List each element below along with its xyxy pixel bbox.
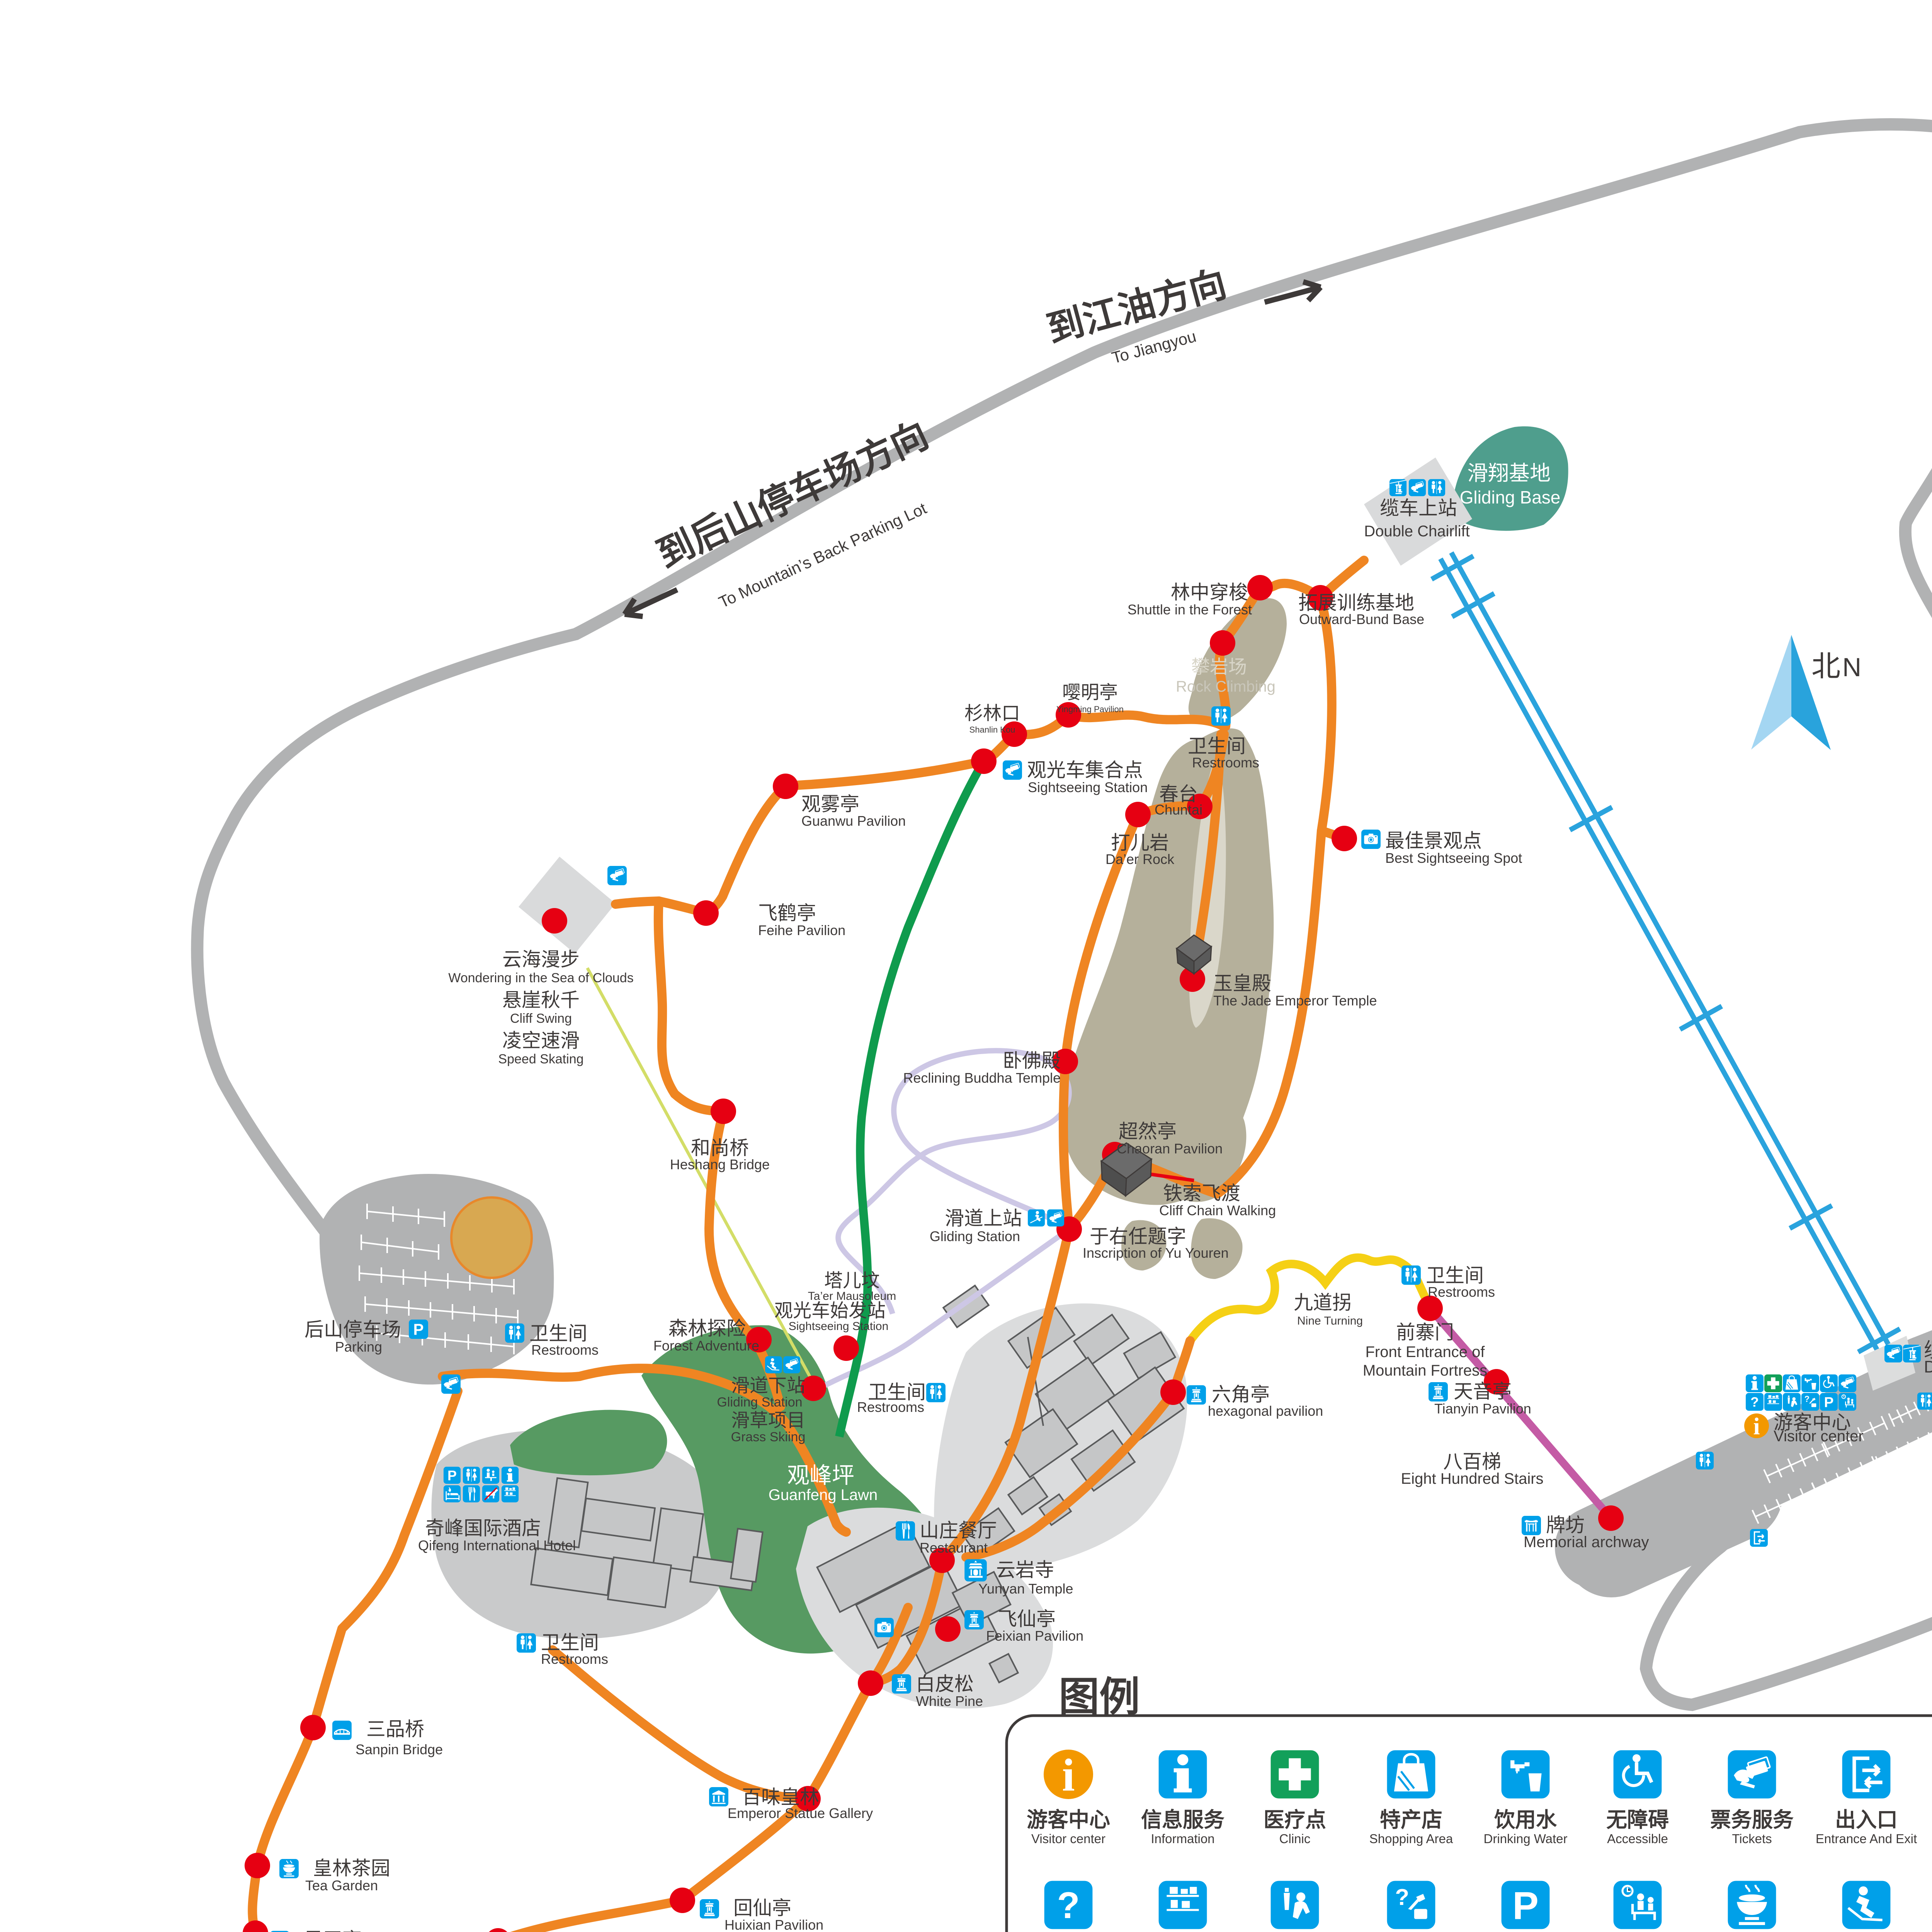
svg-text:卫生间: 卫生间 [541, 1632, 599, 1653]
svg-text:云岩寺: 云岩寺 [996, 1559, 1054, 1581]
svg-text:观雾亭: 观雾亭 [801, 793, 859, 815]
svg-text:Grass Skiing: Grass Skiing [731, 1430, 806, 1444]
svg-text:Gliding Station: Gliding Station [930, 1228, 1020, 1244]
svg-text:Guanwu Pavilion: Guanwu Pavilion [801, 813, 906, 829]
svg-text:Cliff Chain Walking: Cliff Chain Walking [1159, 1202, 1276, 1218]
svg-text:医疗点: 医疗点 [1264, 1808, 1326, 1832]
svg-text:Cliff Swing: Cliff Swing [510, 1011, 572, 1026]
svg-text:Double Chairlift: Double Chairlift [1924, 1357, 1932, 1376]
svg-text:Double Chairlift: Double Chairlift [1364, 523, 1469, 540]
svg-text:君王亭: 君王亭 [304, 1929, 362, 1932]
svg-text:滑翔基地: 滑翔基地 [1467, 462, 1551, 485]
svg-text:Yingming Pavilion: Yingming Pavilion [1056, 704, 1124, 714]
svg-text:前寨门: 前寨门 [1396, 1321, 1454, 1343]
svg-text:Forest Adventure: Forest Adventure [653, 1338, 759, 1354]
svg-text:Eight Hundred Stairs: Eight Hundred Stairs [1401, 1470, 1543, 1487]
svg-text:Restrooms: Restrooms [857, 1399, 924, 1415]
svg-text:Huixian Pavilion: Huixian Pavilion [724, 1917, 823, 1932]
svg-text:天音亭: 天音亭 [1454, 1381, 1512, 1402]
svg-text:Clinic: Clinic [1279, 1832, 1311, 1846]
svg-text:拓展训练基地: 拓展训练基地 [1298, 592, 1414, 614]
svg-text:Rock Climbing: Rock Climbing [1176, 678, 1276, 695]
svg-text:Wondering in the Sea of Clouds: Wondering in the Sea of Clouds [448, 971, 633, 985]
svg-text:观光车集合点: 观光车集合点 [1027, 759, 1143, 781]
svg-text:出入口: 出入口 [1835, 1808, 1898, 1832]
svg-text:飞鹤亭: 飞鹤亭 [758, 902, 816, 924]
svg-text:Gliding Base: Gliding Base [1460, 487, 1561, 507]
svg-text:Reclining Buddha Temple: Reclining Buddha Temple [903, 1070, 1061, 1086]
svg-text:Chaoran Pavilion: Chaoran Pavilion [1117, 1141, 1223, 1156]
svg-text:Front Entrance of: Front Entrance of [1365, 1344, 1485, 1361]
svg-text:卫生间: 卫生间 [1426, 1265, 1484, 1286]
svg-text:Qifeng International Hotel: Qifeng International Hotel [418, 1537, 576, 1553]
svg-text:百味皇林: 百味皇林 [742, 1786, 819, 1808]
svg-text:Restaurant: Restaurant [920, 1540, 988, 1556]
svg-text:缆车上站: 缆车上站 [1380, 497, 1457, 519]
svg-text:滑道上站: 滑道上站 [945, 1207, 1022, 1229]
svg-text:Accessible: Accessible [1607, 1832, 1668, 1846]
svg-text:和尚桥: 和尚桥 [691, 1137, 749, 1159]
svg-text:Best Sightseeing Spot: Best Sightseeing Spot [1385, 850, 1522, 866]
svg-text:卫生间: 卫生间 [1188, 735, 1246, 757]
svg-text:信息服务: 信息服务 [1141, 1808, 1225, 1832]
svg-text:杉林口: 杉林口 [964, 703, 1020, 724]
svg-text:滑道下站: 滑道下站 [731, 1376, 805, 1396]
svg-text:Tickets: Tickets [1732, 1832, 1772, 1846]
svg-text:Restrooms: Restrooms [541, 1651, 608, 1667]
svg-text:Guanfeng Lawn: Guanfeng Lawn [769, 1486, 878, 1503]
svg-text:游客中心: 游客中心 [1027, 1808, 1110, 1832]
svg-text:后山停车场: 后山停车场 [304, 1319, 401, 1340]
svg-text:山庄餐厅: 山庄餐厅 [920, 1520, 997, 1541]
svg-text:Sightseeing Station: Sightseeing Station [1028, 779, 1148, 795]
svg-text:森林探险: 森林探险 [668, 1318, 746, 1339]
svg-text:超然亭: 超然亭 [1119, 1121, 1177, 1142]
svg-text:Parking: Parking [335, 1339, 382, 1355]
svg-text:饮用水: 饮用水 [1494, 1808, 1557, 1832]
svg-text:观峰坪: 观峰坪 [787, 1463, 854, 1488]
svg-text:观光车始发站: 观光车始发站 [774, 1301, 886, 1321]
svg-text:Speed Skating: Speed Skating [498, 1052, 583, 1066]
svg-text:凌空速滑: 凌空速滑 [502, 1030, 580, 1051]
svg-text:皇林茶园: 皇林茶园 [313, 1857, 390, 1879]
svg-text:i: i [1062, 1749, 1075, 1801]
svg-text:六角亭: 六角亭 [1212, 1384, 1270, 1405]
svg-text:The Jade Emperor Temple: The Jade Emperor Temple [1213, 993, 1377, 1009]
svg-text:塔儿坟: 塔儿坟 [824, 1270, 880, 1291]
svg-text:图例: 图例 [1059, 1675, 1140, 1720]
svg-text:嘤明亭: 嘤明亭 [1062, 682, 1118, 703]
svg-text:Entrance And Exit: Entrance And Exit [1816, 1832, 1917, 1846]
svg-text:Outward-Bund Base: Outward-Bund Base [1299, 611, 1424, 627]
svg-text:Shopping Area: Shopping Area [1369, 1832, 1453, 1846]
svg-text:回仙亭: 回仙亭 [733, 1897, 791, 1919]
svg-text:九道拐: 九道拐 [1294, 1292, 1352, 1313]
svg-text:Mountain Fortress: Mountain Fortress [1363, 1362, 1487, 1379]
svg-text:打儿岩: 打儿岩 [1111, 832, 1169, 854]
svg-text:特产店: 特产店 [1380, 1808, 1442, 1832]
svg-text:林中穿梭: 林中穿梭 [1171, 582, 1248, 603]
svg-text:White Pine: White Pine [916, 1693, 983, 1709]
svg-text:Shuttle in the Forest: Shuttle in the Forest [1128, 602, 1252, 617]
svg-text:铁索飞渡: 铁索飞渡 [1163, 1182, 1240, 1204]
svg-text:Heshang Bridge: Heshang Bridge [670, 1156, 770, 1172]
svg-text:Feihe Pavilion: Feihe Pavilion [758, 922, 845, 938]
svg-text:Shanlin Kou: Shanlin Kou [969, 725, 1015, 735]
svg-text:Yunyan Temple: Yunyan Temple [978, 1581, 1073, 1597]
svg-text:票务服务: 票务服务 [1710, 1808, 1794, 1832]
svg-text:悬崖秋千: 悬崖秋千 [502, 989, 580, 1011]
svg-text:于右任题字: 于右任题字 [1090, 1226, 1186, 1247]
svg-text:Da’er Rock: Da’er Rock [1105, 851, 1175, 867]
svg-text:牌坊: 牌坊 [1546, 1514, 1585, 1536]
svg-text:Inscription of Yu Youren: Inscription of Yu Youren [1083, 1245, 1229, 1261]
svg-text:滑草项目: 滑草项目 [731, 1410, 805, 1431]
svg-text:北: 北 [1811, 650, 1840, 682]
svg-text:Feixian Pavilion: Feixian Pavilion [986, 1628, 1083, 1644]
svg-text:无障碍: 无障碍 [1606, 1808, 1669, 1832]
svg-text:飞仙亭: 飞仙亭 [998, 1608, 1056, 1630]
svg-text:三品桥: 三品桥 [366, 1718, 424, 1740]
svg-text:卧佛殿: 卧佛殿 [1003, 1050, 1061, 1071]
svg-text:攀岩场: 攀岩场 [1191, 657, 1247, 677]
svg-text:奇峰国际酒店: 奇峰国际酒店 [425, 1517, 541, 1539]
svg-text:Sanpin Bridge: Sanpin Bridge [355, 1742, 443, 1757]
svg-text:Tianyin Pavilion: Tianyin Pavilion [1434, 1401, 1531, 1417]
svg-text:Nine Turning: Nine Turning [1297, 1315, 1363, 1327]
svg-text:八百梯: 八百梯 [1443, 1451, 1501, 1473]
svg-text:Information: Information [1151, 1832, 1214, 1846]
svg-text:Restrooms: Restrooms [1192, 755, 1259, 770]
svg-text:N: N [1842, 653, 1861, 682]
svg-text:Restrooms: Restrooms [531, 1342, 599, 1358]
svg-text:云海漫步: 云海漫步 [502, 949, 580, 970]
svg-text:hexagonal pavilion: hexagonal pavilion [1208, 1403, 1323, 1419]
svg-text:Gliding Station: Gliding Station [717, 1395, 802, 1410]
svg-text:Tea Garden: Tea Garden [305, 1878, 378, 1893]
svg-text:Chuntai: Chuntai [1155, 802, 1202, 818]
svg-text:Memorial archway: Memorial archway [1524, 1534, 1649, 1551]
svg-text:Emperor Statue Gallery: Emperor Statue Gallery [728, 1805, 873, 1821]
svg-text:i: i [1753, 1413, 1760, 1440]
svg-text:Visitor center: Visitor center [1774, 1428, 1864, 1445]
svg-text:Sightseeing Station: Sightseeing Station [789, 1320, 889, 1333]
svg-text:白皮松: 白皮松 [916, 1673, 974, 1695]
svg-text:玉皇殿: 玉皇殿 [1213, 973, 1271, 994]
svg-text:Visitor center: Visitor center [1031, 1832, 1105, 1846]
svg-text:Restrooms: Restrooms [1428, 1284, 1495, 1300]
svg-text:Drinking Water: Drinking Water [1484, 1832, 1568, 1846]
svg-text:最佳景观点: 最佳景观点 [1385, 830, 1482, 852]
svg-text:卫生间: 卫生间 [529, 1323, 587, 1344]
